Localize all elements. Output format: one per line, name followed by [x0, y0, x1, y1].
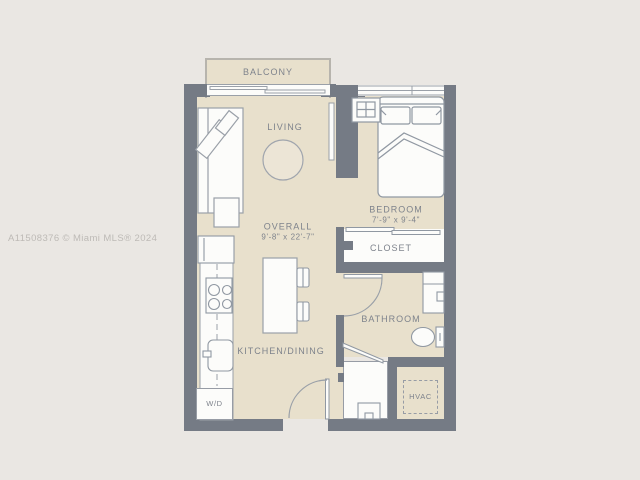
overall-label: OVERALL 9'-8" x 22'-7": [261, 222, 314, 243]
toilet-icon: [412, 327, 445, 347]
bedroom-dimensions: 7'-9" x 9'-4": [369, 216, 423, 226]
kitchen-sink-icon: [203, 340, 233, 371]
bathroom-label: BATHROOM: [361, 314, 420, 324]
stool-icon: [297, 268, 309, 321]
nightstand-icon: [352, 98, 380, 122]
entry-closet-door-icon: [343, 343, 383, 363]
closet-label: CLOSET: [370, 243, 412, 253]
closet-sliding-doors-icon: [346, 228, 440, 235]
washer-dryer-unit: W/D: [196, 388, 233, 420]
balcony-label: BALCONY: [243, 67, 293, 77]
hvac-unit: HVAC: [403, 380, 438, 414]
vanity-sink-icon: [423, 272, 444, 313]
sliding-door-icon: [207, 85, 330, 96]
kitchen-dining-label: KITCHEN/DINING: [237, 346, 325, 356]
overall-title: OVERALL: [264, 222, 313, 232]
hvac-label: HVAC: [409, 392, 432, 402]
overall-dimensions: 9'-8" x 22'-7": [261, 233, 314, 243]
bedroom-title: BEDROOM: [369, 205, 423, 215]
side-table-icon: [214, 198, 239, 227]
floorplan: HVAC W/D BALCONY LIVING OVERALL 9'-8" x …: [0, 0, 640, 480]
bed-icon: [378, 97, 444, 197]
living-label: LIVING: [267, 122, 303, 132]
mls-watermark: A11508376 © Miami MLS® 2024: [8, 233, 157, 244]
washer-dryer-label: W/D: [206, 399, 222, 409]
fridge-icon: [198, 236, 234, 263]
entry-door-icon: [289, 379, 329, 419]
stove-icon: [206, 278, 232, 313]
window-icon: [358, 86, 444, 95]
kitchen-island-icon: [263, 258, 297, 333]
tv-icon: [329, 103, 334, 160]
water-heater-icon: [358, 403, 380, 419]
round-table-icon: [263, 140, 303, 180]
sofa-icon: [196, 108, 243, 213]
bedroom-label: BEDROOM 7'-9" x 9'-4": [369, 205, 423, 226]
bathroom-door-icon: [344, 275, 382, 317]
